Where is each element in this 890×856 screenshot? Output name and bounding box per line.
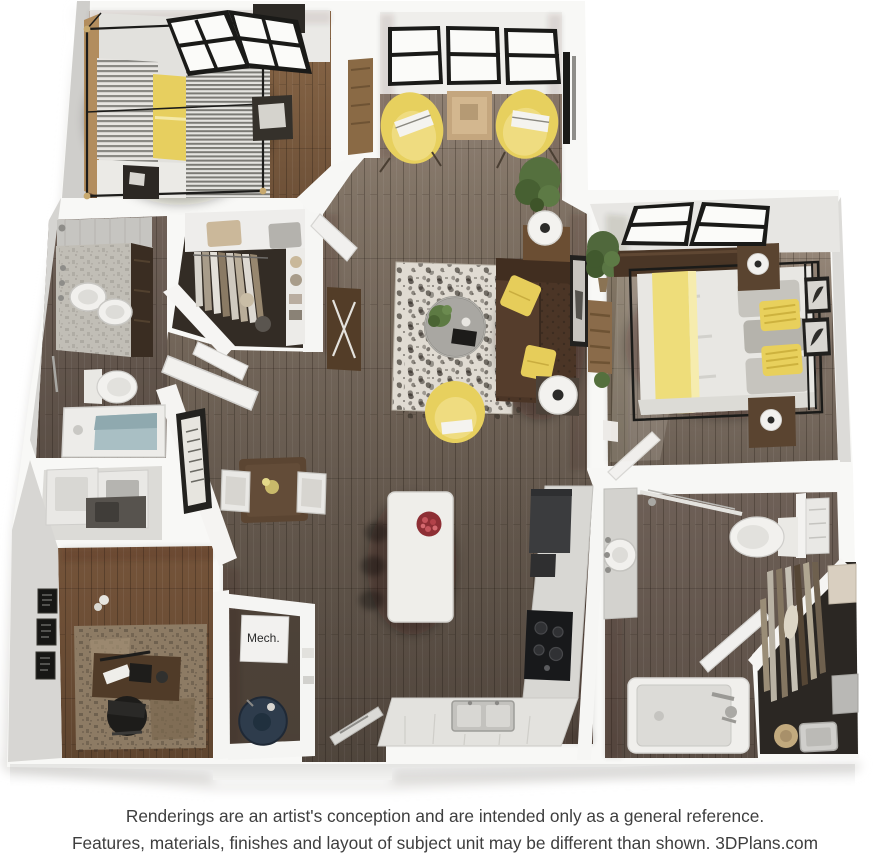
svg-text:Mech.: Mech. [247,631,280,645]
svg-text:Features, materials, finishes: Features, materials, finishes and layout… [72,833,818,853]
svg-text:Renderings are an artist's con: Renderings are an artist's conception an… [126,806,764,826]
